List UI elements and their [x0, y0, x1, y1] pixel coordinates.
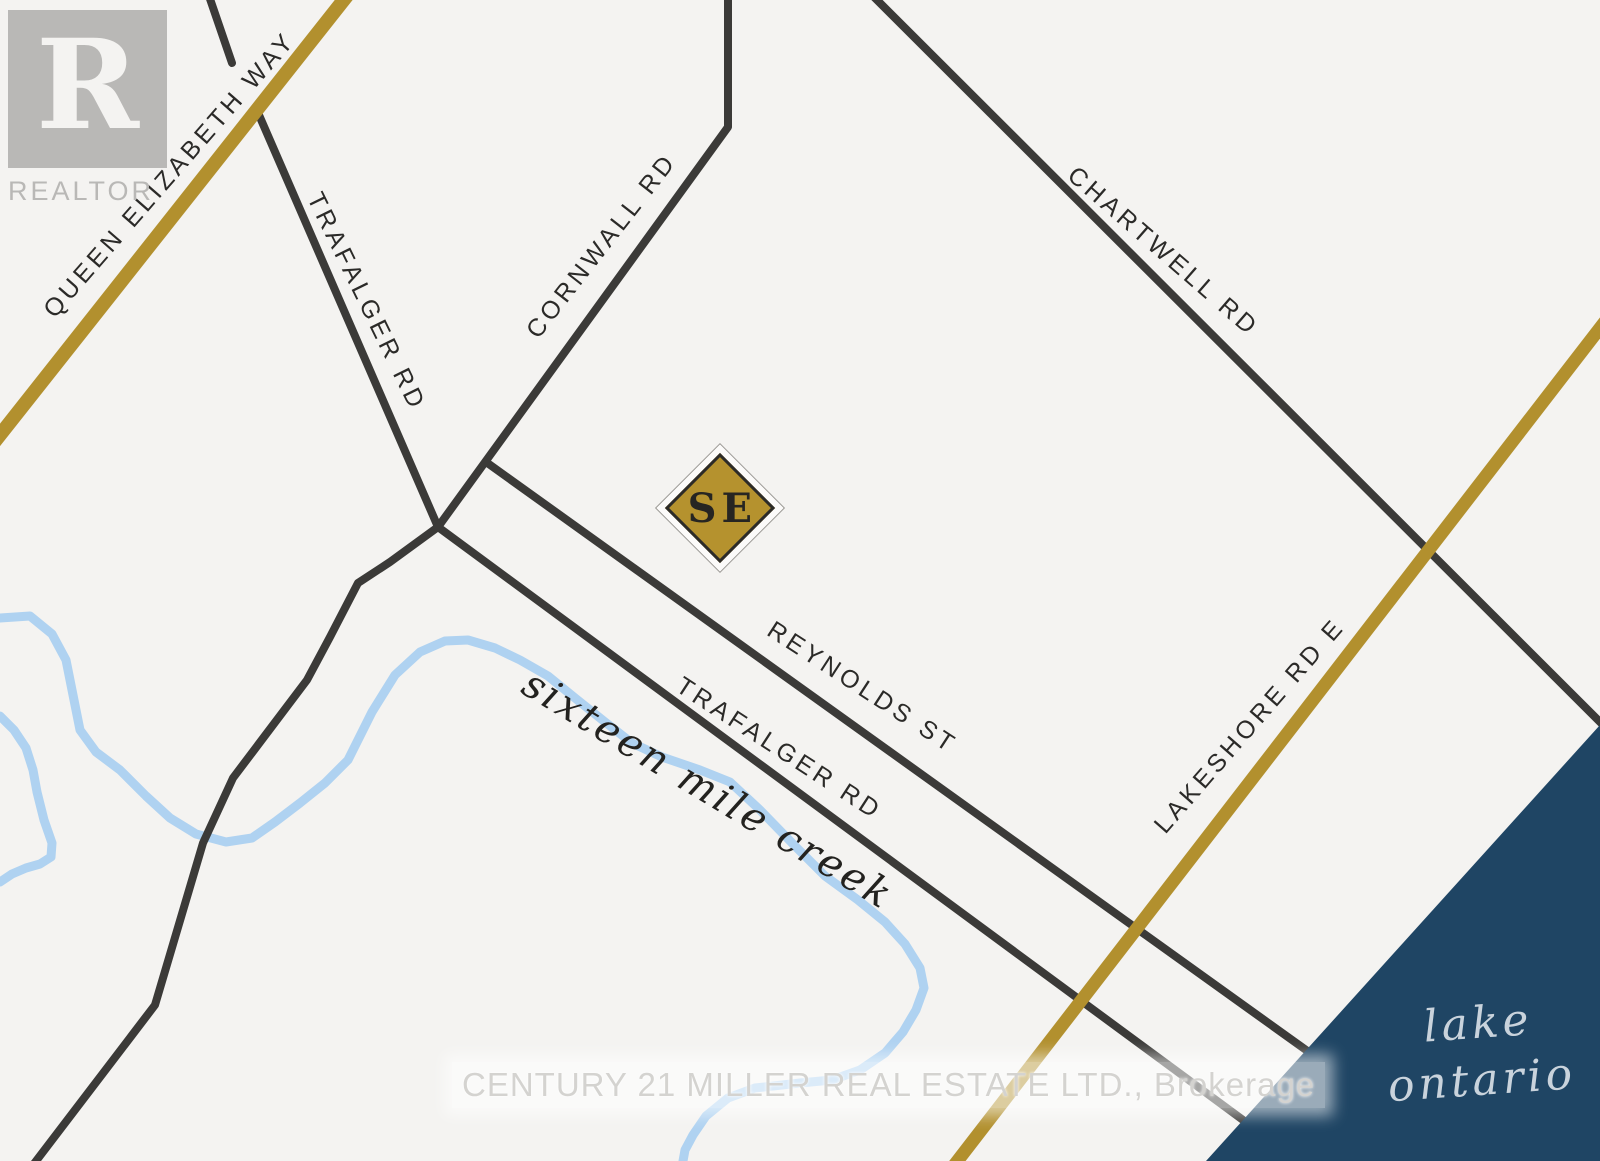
trafalgar-rd-north-upper-segment [209, 0, 232, 63]
reynolds-st-path [486, 462, 1320, 1060]
label-lake-ontario: lake ontario [1382, 988, 1578, 1115]
brokerage-watermark: CENTURY 21 MILLER REAL ESTATE LTD., Brok… [452, 1062, 1325, 1108]
realtor-logo: R REALTOR [8, 10, 167, 207]
marker-label: SE [683, 485, 757, 532]
location-map: SE QUEEN ELIZABETH WAY TRAFALGER RD CORN… [0, 0, 1600, 1161]
map-artwork [0, 0, 1600, 1161]
realtor-logo-square: R [8, 10, 167, 168]
trafalgar-rd-north-lower-segment [259, 115, 438, 527]
chartwell-rd-path [873, 0, 1600, 726]
creek-path-oxbow [0, 716, 52, 882]
realtor-logo-word: REALTOR [8, 176, 167, 207]
realtor-logo-letter: R [36, 24, 139, 148]
trafalgar-rd-south-path [438, 527, 1243, 1120]
